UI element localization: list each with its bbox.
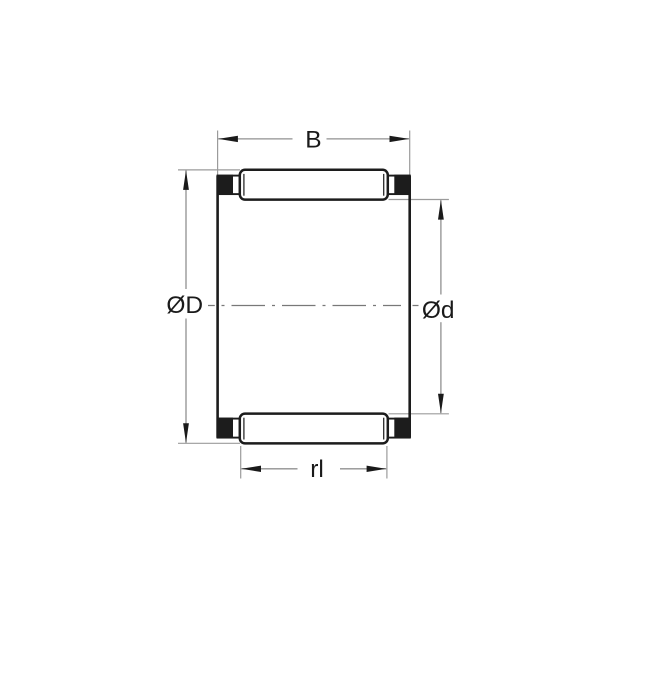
svg-text:rl: rl bbox=[310, 456, 324, 483]
svg-text:Ød: Ød bbox=[422, 297, 455, 324]
svg-text:B: B bbox=[305, 127, 321, 154]
svg-text:ØD: ØD bbox=[166, 292, 203, 319]
